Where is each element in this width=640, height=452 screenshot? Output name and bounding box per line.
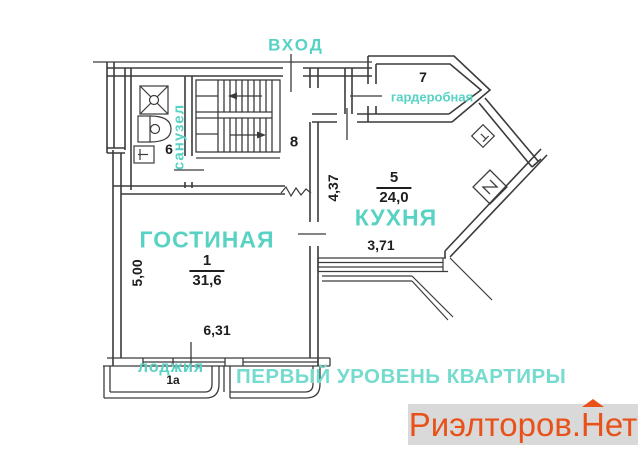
room-label-wardrobe: гардеробная <box>391 91 473 104</box>
watermark: Риэлторов.Нет <box>408 404 638 445</box>
house-roof-icon <box>582 399 604 407</box>
shower-icon <box>140 86 168 114</box>
room-label-bathroom: санузел <box>172 104 187 170</box>
vent-shaft-small-icon <box>472 125 495 148</box>
dimension-living-width: 6,31 <box>203 323 230 337</box>
dimension-kitchen-width: 3,71 <box>367 238 394 252</box>
top-wall <box>107 68 372 76</box>
break-line-icon <box>281 187 311 196</box>
room-number-wardrobe: 7 <box>419 70 427 84</box>
watermark-house-letter: Н <box>581 406 605 444</box>
room-number-bathroom: 6 <box>165 142 173 156</box>
watermark-text-right: ет <box>605 406 637 444</box>
plan-subtitle: ПЕРВЫЙ УРОВЕНЬ КВАРТИРЫ <box>236 365 566 389</box>
room-label-living: ГОСТИНАЯ <box>140 229 275 252</box>
hallway-walls <box>310 68 352 114</box>
room-area-living: 31,6 <box>189 270 224 290</box>
kitchen-window <box>318 258 448 272</box>
kitchen-bay-walls <box>445 98 547 258</box>
stairs-steps <box>224 80 266 152</box>
kitchen-number-area: 5 24,0 <box>376 169 411 207</box>
stairs-arrow-upper <box>228 93 262 100</box>
room-number-kitchen: 5 <box>376 169 411 187</box>
toilet-icon <box>138 116 171 142</box>
living-number-area: 1 31,6 <box>189 252 224 290</box>
staircase <box>196 80 280 158</box>
room-number-hallway: 8 <box>290 135 298 150</box>
left-walls <box>107 62 131 366</box>
entrance-label: ВХОД <box>268 37 324 54</box>
vent-shaft-large-icon <box>473 170 507 204</box>
room-number-living: 1 <box>189 252 224 270</box>
room-label-kitchen: КУХНЯ <box>355 207 437 230</box>
living-room-top-wall <box>113 186 285 194</box>
floor-plan: ВХОД санузел 6 7 гардеробная 8 5 24,0 КУ… <box>0 0 640 452</box>
room-number-loggia: 1а <box>166 374 179 386</box>
sink-icon <box>134 146 154 163</box>
watermark-text-left: Риэлторов. <box>409 406 581 444</box>
dimension-kitchen-depth: 4,37 <box>326 174 340 201</box>
dimension-living-depth: 5,00 <box>130 259 144 286</box>
